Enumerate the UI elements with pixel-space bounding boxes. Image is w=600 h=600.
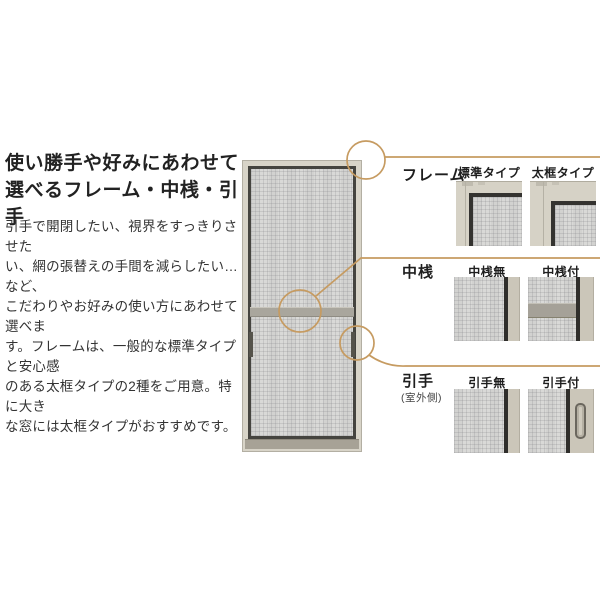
thumb-pull-with — [528, 389, 594, 453]
door-inner-frame — [248, 166, 356, 439]
frame-roller-tab — [536, 182, 547, 186]
recessed-pull-handle — [575, 403, 586, 439]
row-label-midrail: 中桟 — [402, 261, 434, 282]
thumb-midrail-none — [454, 277, 520, 341]
row-note-outdoor-side: (室外側) — [401, 390, 442, 405]
frame-beige-stile — [580, 277, 594, 341]
frame-roller-tab — [552, 182, 559, 185]
frame-roller-tab — [462, 182, 473, 186]
row-label-pull: 引手 — [402, 370, 434, 391]
pull-leader-line — [369, 355, 600, 366]
door-middle-rail — [250, 307, 354, 317]
door-mesh — [251, 169, 353, 436]
door-bottom-rail — [245, 439, 359, 449]
thumb-pull-none — [454, 389, 520, 453]
thumb-midrail-with — [528, 277, 594, 341]
frame-seam-line — [465, 182, 466, 246]
thumb-frame-thick — [530, 181, 596, 246]
option-label-standard: 標準タイプ — [456, 164, 522, 181]
mesh-pane — [528, 389, 566, 453]
mesh-pane — [454, 277, 504, 341]
mesh-pane — [454, 389, 504, 453]
catalog-page: 使い勝手や好みにあわせて 選べるフレーム・中桟・引手 引手で開閉したい、視界をす… — [0, 0, 600, 600]
door-pull-handle-left — [249, 332, 253, 357]
middle-rail-bar — [528, 303, 576, 318]
section-body-text: 引手で開閉したい、視界をすっきりさせた い、網の張替えの手間を減らしたい…など、… — [5, 217, 243, 437]
frame-seam-line — [543, 182, 544, 246]
door-pull-handle-right — [351, 332, 355, 357]
frame-beige-stile — [508, 389, 520, 453]
frame-mesh-pane — [551, 201, 596, 246]
screen-door-illustration — [242, 160, 362, 452]
thumb-frame-standard — [456, 181, 522, 246]
option-label-thick-frame: 太框タイプ — [530, 164, 596, 181]
frame-mesh-pane — [469, 193, 522, 246]
frame-beige-stile — [508, 277, 520, 341]
frame-roller-tab — [478, 182, 485, 185]
